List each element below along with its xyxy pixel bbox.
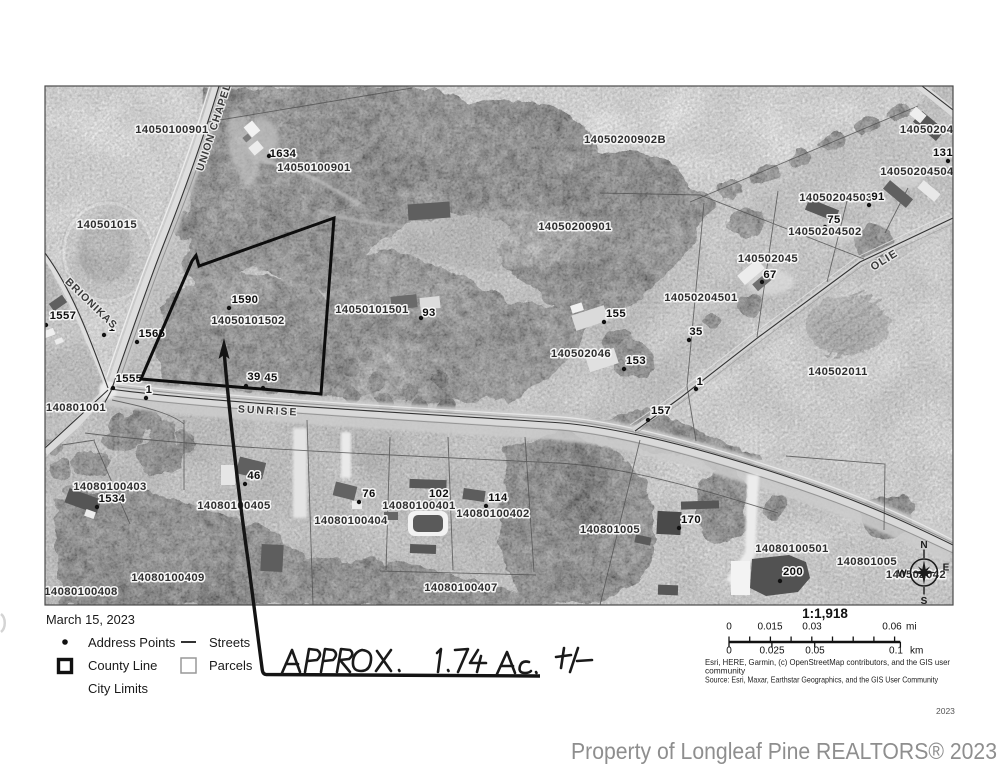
svg-text:1557: 1557 <box>50 310 77 322</box>
svg-text:114: 114 <box>488 492 508 504</box>
svg-text:1634: 1634 <box>270 148 297 160</box>
svg-text:200: 200 <box>783 566 803 578</box>
svg-text:14050204501: 14050204501 <box>664 292 738 304</box>
svg-text:140502045: 140502045 <box>738 253 798 265</box>
svg-text:0.03: 0.03 <box>802 622 822 633</box>
svg-text:E: E <box>943 563 950 574</box>
svg-text:14080100407: 14080100407 <box>424 582 498 594</box>
svg-text:0.025: 0.025 <box>759 646 784 657</box>
svg-text:76: 76 <box>362 488 375 500</box>
svg-text:Property of Longleaf Pine REAL: Property of Longleaf Pine REALTORS® 2023 <box>571 738 997 764</box>
svg-text:14050200902B: 14050200902B <box>584 134 666 146</box>
svg-text:0.06: 0.06 <box>882 622 902 633</box>
svg-text:W: W <box>897 569 907 580</box>
svg-text:14080100402: 14080100402 <box>456 508 530 520</box>
svg-text:2023: 2023 <box>936 706 955 716</box>
svg-text:Parcels: Parcels <box>209 658 253 673</box>
svg-text:157: 157 <box>651 405 671 417</box>
svg-text:N: N <box>920 540 927 551</box>
svg-text:46: 46 <box>247 470 260 482</box>
svg-text:93: 93 <box>422 307 435 319</box>
svg-text:0.1: 0.1 <box>889 646 903 657</box>
svg-text:14080100404: 14080100404 <box>314 515 388 527</box>
svg-text:1555: 1555 <box>116 373 143 385</box>
svg-text:91: 91 <box>871 191 884 203</box>
svg-text:14050100901: 14050100901 <box>277 162 351 174</box>
svg-text:45: 45 <box>264 372 277 384</box>
svg-text:14080100409: 14080100409 <box>131 572 205 584</box>
svg-text:Address Points: Address Points <box>88 635 176 650</box>
svg-text:County Line: County Line <box>88 658 157 673</box>
svg-text:140801005: 140801005 <box>580 524 640 536</box>
svg-text:14050101501: 14050101501 <box>335 304 409 316</box>
svg-text:140502011: 140502011 <box>808 366 868 378</box>
svg-text:102: 102 <box>429 488 449 500</box>
svg-text:Streets: Streets <box>209 635 251 650</box>
svg-text:0.015: 0.015 <box>757 622 782 633</box>
svg-text:14050101502: 14050101502 <box>211 315 285 327</box>
svg-text:14050204502: 14050204502 <box>788 226 862 238</box>
svg-text:km: km <box>910 646 923 657</box>
svg-text:City Limits: City Limits <box>88 681 148 696</box>
svg-text:153: 153 <box>626 355 646 367</box>
svg-text:131: 131 <box>933 147 953 159</box>
svg-text:1: 1 <box>697 376 704 388</box>
svg-text:140502046: 140502046 <box>551 348 611 360</box>
svg-text:35: 35 <box>689 326 702 338</box>
svg-text:155: 155 <box>606 308 626 320</box>
svg-text:140501015: 140501015 <box>77 219 137 231</box>
svg-text:Source: Esri, Maxar, Earthstar: Source: Esri, Maxar, Earthstar Geographi… <box>705 675 939 685</box>
svg-text:0.05: 0.05 <box>805 646 825 657</box>
svg-text:14080100501: 14080100501 <box>755 543 829 555</box>
svg-text:14080100403: 14080100403 <box>73 481 147 493</box>
svg-text:1534: 1534 <box>99 493 126 505</box>
svg-text:140801001: 140801001 <box>46 402 106 414</box>
svg-text:140801005: 140801005 <box>837 556 897 568</box>
svg-text:mi: mi <box>906 622 917 633</box>
svg-text:1: 1 <box>146 384 153 396</box>
svg-text:14080100405: 14080100405 <box>197 500 271 512</box>
svg-text:75: 75 <box>827 214 840 226</box>
svg-text:14080100408: 14080100408 <box>44 586 118 598</box>
svg-text:14050204504: 14050204504 <box>880 166 954 178</box>
svg-text:1590: 1590 <box>232 294 259 306</box>
svg-text:0: 0 <box>726 622 732 633</box>
svg-text:39: 39 <box>247 371 260 383</box>
svg-text:14050100901: 14050100901 <box>135 124 209 136</box>
svg-text:14080100401: 14080100401 <box>382 500 456 512</box>
svg-text:170: 170 <box>681 514 701 526</box>
svg-text:March 15, 2023: March 15, 2023 <box>46 612 135 627</box>
svg-text:0: 0 <box>726 646 732 657</box>
svg-text:140502044: 140502044 <box>900 124 960 136</box>
svg-text:14050200901: 14050200901 <box>538 221 612 233</box>
svg-text:67: 67 <box>763 269 776 281</box>
svg-text:1:1,918: 1:1,918 <box>802 606 848 621</box>
svg-text:14050204503: 14050204503 <box>799 192 873 204</box>
